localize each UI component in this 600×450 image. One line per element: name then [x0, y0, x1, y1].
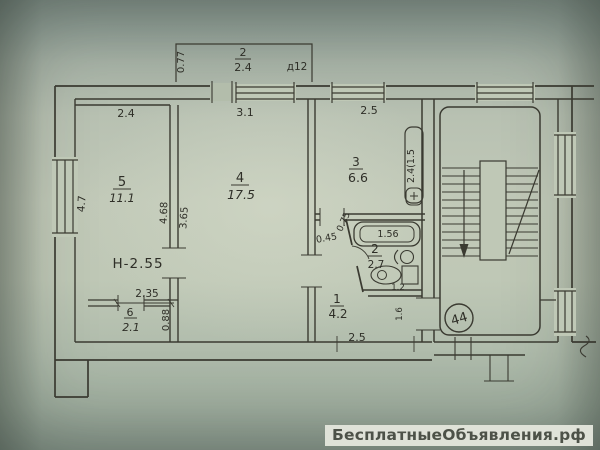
dim-entry: 1.6	[395, 307, 405, 321]
door-ticks-room5	[162, 248, 186, 278]
dim-left-wall: 4.7	[75, 195, 88, 212]
window-right-lower	[540, 288, 576, 336]
door-ticks-entrance	[416, 298, 440, 330]
stair-diagonal	[509, 170, 539, 254]
toilet-dim-label: 1.2	[391, 283, 405, 293]
dim-bath-door: 0.45	[315, 231, 338, 246]
wall-room3-bottom	[315, 214, 425, 220]
window-room4	[234, 82, 296, 103]
toilet-tank	[402, 266, 418, 284]
stair-divider	[480, 161, 506, 260]
room5-number-label: 5	[118, 175, 126, 190]
dim-closet-right: 0.88	[161, 309, 172, 331]
room4-number-label: 4	[236, 171, 244, 186]
window-left-wall	[52, 157, 78, 237]
balcony-number-label: 2	[240, 46, 247, 59]
dim-room3-door: 0.75	[335, 211, 353, 233]
room3-number-label: 3	[352, 155, 360, 169]
dim-room5-top: 2.4	[117, 107, 135, 120]
apartment-number-label: 44	[449, 310, 469, 329]
floor-plan-photo: 44 2 2.4 0.77 д12 2.4 3.1 2.5 4.7 4.68 3…	[0, 0, 600, 450]
balcony-door-mark: д12	[287, 61, 308, 73]
dim-wall54-left: 4.68	[159, 202, 171, 225]
dim-closet-top: 2.35	[135, 288, 158, 300]
wall-break-mark	[580, 336, 589, 357]
bathtub-dim-label: 1.56	[377, 229, 398, 240]
bath-door-arc	[352, 246, 369, 259]
window-room3	[330, 82, 386, 103]
dim-room3-top: 2.5	[360, 104, 378, 117]
window-right-upper	[554, 132, 576, 198]
vent-dim-label: 2.4(1.5	[406, 149, 417, 183]
balcony-area-label: 2.4	[234, 61, 252, 74]
bath-area-label: 2.7	[368, 259, 385, 271]
bath-number-label: 2	[371, 242, 379, 256]
dim-room4-top: 3.1	[236, 106, 254, 119]
balcony-depth-dim: 0.77	[176, 51, 187, 73]
sink	[401, 251, 414, 264]
room3-area-label: 6.6	[348, 170, 368, 185]
stairwell: 44	[440, 107, 540, 335]
room5-area-label: 11.1	[109, 191, 135, 205]
door-ticks-room4	[301, 255, 322, 287]
balcony-door-gap	[210, 83, 234, 101]
watermark: БесплатныеОбъявления.рф	[325, 425, 593, 446]
entrance-porch	[455, 337, 514, 381]
corridor-area-label: 4.2	[328, 307, 347, 321]
corridor-number-label: 1	[333, 292, 341, 306]
floor-plan-drawing: 44 2 2.4 0.77 д12 2.4 3.1 2.5 4.7 4.68 3…	[0, 0, 600, 450]
dim-corridor-bottom: 2.5	[348, 331, 366, 344]
closet-area-label: 2.1	[122, 321, 140, 334]
wall-room4-corridor	[308, 99, 315, 342]
dimension-lines	[113, 59, 414, 352]
closet-number-label: 6	[127, 306, 134, 319]
vent-cross	[410, 192, 418, 200]
dim-wall54-right: 3.65	[178, 206, 191, 229]
sink-bracket	[395, 250, 399, 264]
room4-area-label: 17.5	[227, 187, 255, 202]
ceiling-height-note: Н-2.55	[112, 256, 163, 272]
window-stairwell	[475, 82, 535, 103]
wall-stair-bottom	[434, 342, 558, 355]
toilet-drain	[378, 271, 387, 280]
